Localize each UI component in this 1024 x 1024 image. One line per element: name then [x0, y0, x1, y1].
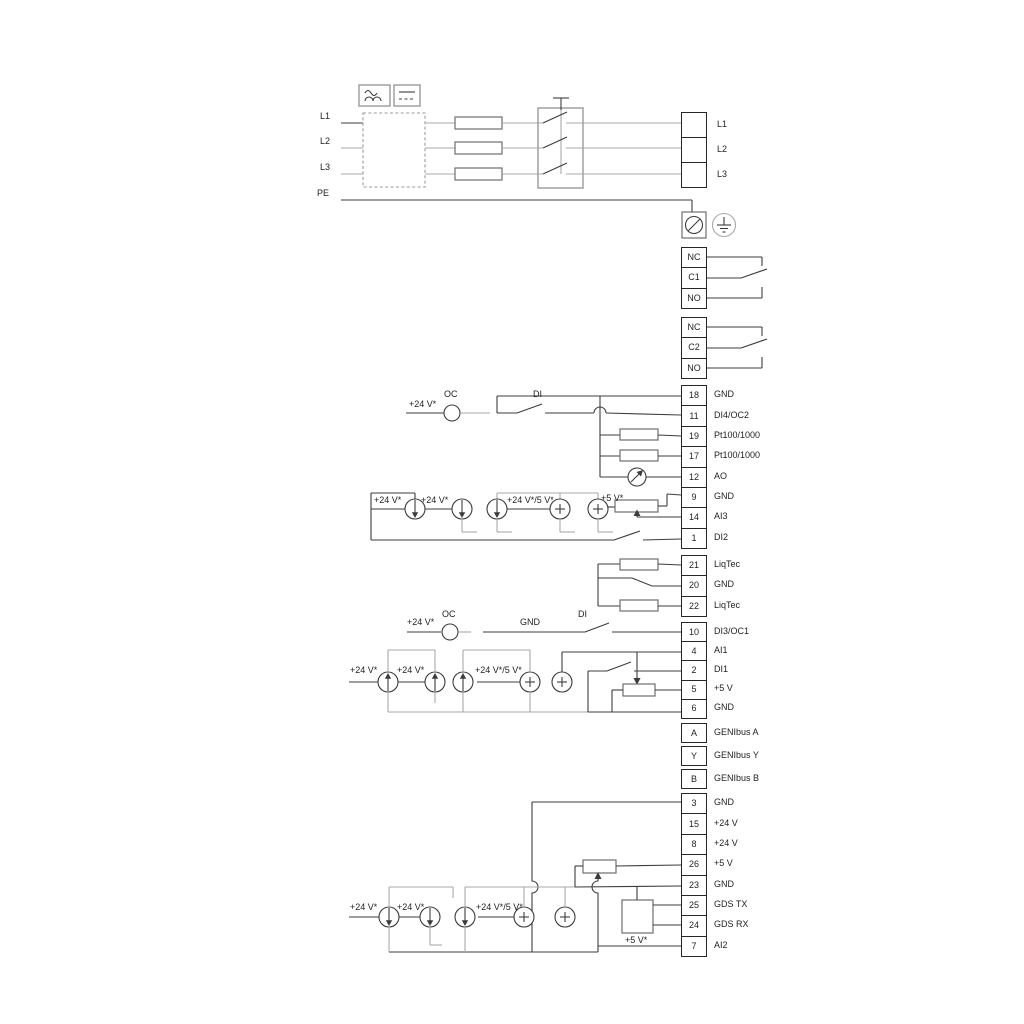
- terminal-label-+5-v: +5 V: [714, 684, 733, 694]
- power-left-label-pe: PE: [317, 189, 329, 199]
- di-switch-icon: [585, 623, 609, 632]
- terminal-14: 14: [681, 507, 707, 528]
- annotation-24-v: +24 V*: [350, 903, 377, 913]
- terminal-12: 12: [681, 467, 707, 488]
- terminal-label-ai3: AI3: [714, 512, 728, 522]
- terminal-label-gnd: GND: [714, 580, 734, 590]
- terminal-a: A: [681, 723, 707, 743]
- terminal-label-genibus-a: GENIbus A: [714, 728, 759, 738]
- ai2-gds-wiring: [349, 802, 681, 952]
- liqtec-sensor-wiring: [598, 559, 681, 611]
- cable-screw-terminal-icon: [682, 212, 706, 238]
- power-left-label-l3: L3: [320, 163, 330, 173]
- fuse-l2-icon: [425, 142, 543, 154]
- liqtec-resistor-icon: [620, 600, 658, 611]
- terminal-3: 3: [681, 793, 707, 814]
- terminal-label-gds-rx: GDS RX: [714, 920, 749, 930]
- annotation-24-v: +24 V*: [350, 666, 377, 676]
- terminal-17: 17: [681, 446, 707, 467]
- terminal-21: 21: [681, 555, 707, 576]
- terminal-label-di2: DI2: [714, 533, 728, 543]
- voltage-source-icon: [520, 672, 540, 692]
- terminal-2: 2: [681, 660, 707, 680]
- annotation-di: DI: [578, 610, 587, 620]
- terminal-label-liqtec: LiqTec: [714, 560, 740, 570]
- relay2-contact-icon: [707, 327, 767, 368]
- terminal-l3: [681, 162, 707, 188]
- gds-sensor-box: [622, 886, 681, 933]
- terminal-18: 18: [681, 385, 707, 406]
- terminal-no: NO: [681, 288, 707, 309]
- terminal-label-di1: DI1: [714, 665, 728, 675]
- voltage-source-icon: [552, 672, 572, 692]
- annotation-5-v: +5 V*: [601, 494, 623, 504]
- open-collector-icon: [442, 624, 458, 640]
- io1-wiring: [406, 396, 681, 486]
- terminal-1: 1: [681, 528, 707, 549]
- current-source-icon: [379, 907, 399, 927]
- terminal-22: 22: [681, 596, 707, 617]
- terminal-20: 20: [681, 575, 707, 596]
- terminal-label-gnd: GND: [714, 492, 734, 502]
- terminal-l1: [681, 112, 707, 138]
- terminal-label-+24-v: +24 V: [714, 839, 738, 849]
- current-source-icon: [378, 672, 398, 692]
- annotation-24-v: +24 V*: [397, 666, 424, 676]
- terminal-label-genibus-b: GENIbus B: [714, 774, 759, 784]
- terminal-label-+24-v: +24 V: [714, 819, 738, 829]
- terminal-y: Y: [681, 746, 707, 766]
- wiring-diagram-page: +24 V*OCDI+24 V*+24 V*+24 V*/5 V*+5 V*+2…: [0, 0, 1024, 1024]
- terminal-label-di4-oc2: DI4/OC2: [714, 411, 749, 421]
- terminal-nc: NC: [681, 317, 707, 338]
- terminal-label-di3-oc1: DI3/OC1: [714, 627, 749, 637]
- power-section-wiring: [341, 85, 736, 238]
- analog-output-meter-icon: [600, 468, 681, 486]
- fuse-l1-icon: [425, 117, 543, 129]
- power-left-label-l1: L1: [320, 112, 330, 122]
- terminal-5: 5: [681, 680, 707, 700]
- di-switch-icon: [517, 404, 542, 413]
- annotation-24-v: +24 V*: [407, 618, 434, 628]
- terminal-26: 26: [681, 854, 707, 875]
- terminal-label-gnd: GND: [714, 703, 734, 713]
- terminal-c1: C1: [681, 267, 707, 288]
- ac-symbol-icon: [359, 85, 390, 106]
- terminal-c2: C2: [681, 337, 707, 358]
- terminal-label-pt100-1000: Pt100/1000: [714, 431, 760, 441]
- terminal-7: 7: [681, 936, 707, 957]
- dc-symbol-icon: [394, 85, 420, 106]
- annotation-24-v: +24 V*: [409, 400, 436, 410]
- terminal-label-gds-tx: GDS TX: [714, 900, 747, 910]
- terminal-23: 23: [681, 875, 707, 896]
- di2-switch-icon: [614, 531, 640, 540]
- potentiometer-icon: [615, 494, 681, 517]
- annotation-oc: OC: [444, 390, 458, 400]
- terminal-nc: NC: [681, 247, 707, 268]
- terminal-6: 6: [681, 699, 707, 719]
- annotation-24-v: +24 V*: [421, 496, 448, 506]
- annotation-gnd: GND: [520, 618, 540, 628]
- terminal-label-l2: L2: [717, 145, 727, 155]
- annotation-5-v: +5 V*: [625, 936, 647, 946]
- open-collector-icon: [444, 405, 460, 421]
- terminal-11: 11: [681, 405, 707, 426]
- annotation-24-v: +24 V*: [397, 903, 424, 913]
- annotation-24-v-5-v: +24 V*/5 V*: [475, 666, 522, 676]
- annotation-24-v: +24 V*: [374, 496, 401, 506]
- current-source-icon: [452, 499, 472, 519]
- terminal-9: 9: [681, 487, 707, 508]
- annotation-oc: OC: [442, 610, 456, 620]
- current-source-icon: [453, 672, 473, 692]
- potentiometer-icon: [612, 684, 681, 712]
- current-source-icon: [455, 907, 475, 927]
- fuse-l3-icon: [425, 168, 543, 180]
- ai1-sensor-wiring: [349, 650, 681, 712]
- terminal-4: 4: [681, 641, 707, 661]
- terminal-label-gnd: GND: [714, 390, 734, 400]
- terminal-label-gnd: GND: [714, 798, 734, 808]
- current-source-icon: [487, 499, 507, 519]
- voltage-source-icon: [555, 907, 575, 927]
- liqtec-resistor-icon: [620, 559, 658, 570]
- pt100-resistor-icon: [600, 450, 681, 461]
- terminal-label-ai1: AI1: [714, 646, 728, 656]
- di3-wiring: [407, 623, 681, 640]
- annotation-24-v-5-v: +24 V*/5 V*: [476, 903, 523, 913]
- terminal-label-pt100-1000: Pt100/1000: [714, 451, 760, 461]
- terminal-label-genibus-y: GENIbus Y: [714, 751, 759, 761]
- current-source-icon: [425, 672, 445, 692]
- terminal-no: NO: [681, 358, 707, 379]
- wiring-diagram: [0, 0, 1024, 1024]
- potentiometer-icon: [575, 860, 681, 887]
- terminal-25: 25: [681, 895, 707, 916]
- terminal-19: 19: [681, 426, 707, 447]
- terminal-8: 8: [681, 834, 707, 855]
- emc-filter-box: [363, 113, 425, 187]
- pt100-resistor-icon: [600, 429, 681, 440]
- annotation-di: DI: [533, 390, 542, 400]
- relay1-contact-icon: [707, 257, 767, 298]
- terminal-label-l1: L1: [717, 120, 727, 130]
- terminal-10: 10: [681, 622, 707, 642]
- terminal-15: 15: [681, 813, 707, 834]
- terminal-24: 24: [681, 915, 707, 936]
- terminal-label-+5-v: +5 V: [714, 859, 733, 869]
- power-left-label-l2: L2: [320, 137, 330, 147]
- annotation-24-v-5-v: +24 V*/5 V*: [507, 496, 554, 506]
- terminal-l2: [681, 137, 707, 163]
- terminal-label-l3: L3: [717, 170, 727, 180]
- earth-ground-icon: [713, 214, 736, 237]
- di1-switch-icon: [607, 662, 631, 671]
- terminal-label-ai2: AI2: [714, 941, 728, 951]
- terminal-label-gnd: GND: [714, 880, 734, 890]
- terminal-label-liqtec: LiqTec: [714, 601, 740, 611]
- terminal-b: B: [681, 769, 707, 789]
- terminal-label-ao: AO: [714, 472, 727, 482]
